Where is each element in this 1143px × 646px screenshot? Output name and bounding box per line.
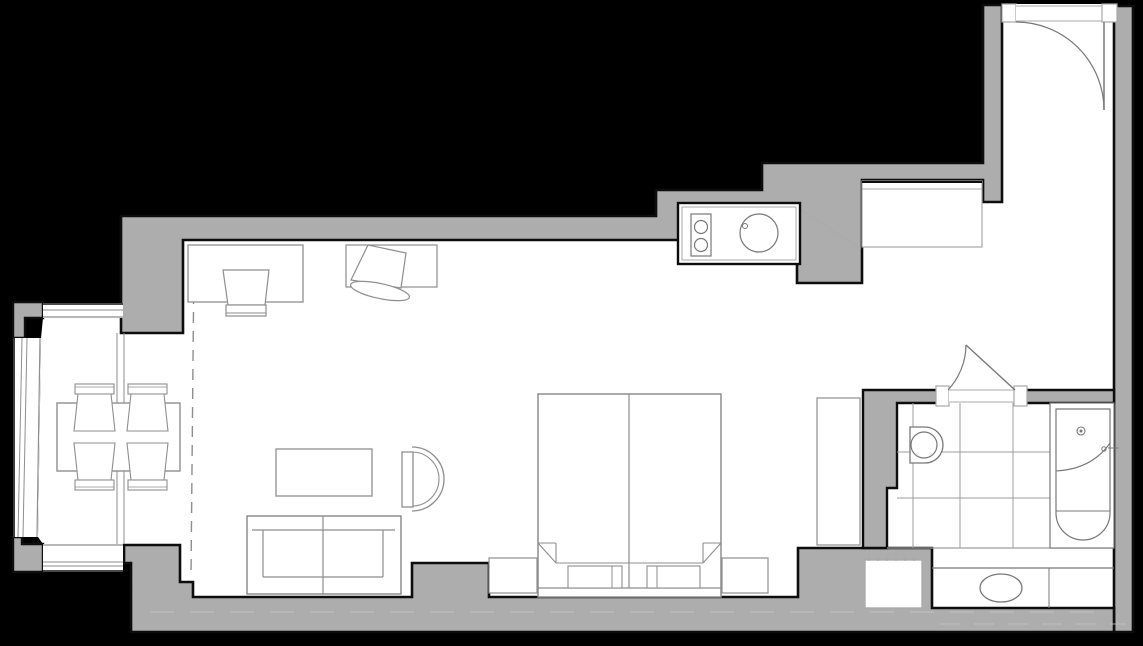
armchair-front-bar xyxy=(402,452,413,507)
entry-door-jamb-left xyxy=(1002,4,1016,22)
toilet-bowl xyxy=(911,432,937,458)
bay-window-bottom xyxy=(43,544,123,572)
dining-chair-4-back xyxy=(128,480,167,490)
bath-door-jamb-left xyxy=(936,386,949,406)
sofa xyxy=(247,516,401,594)
nightstand-right xyxy=(722,558,768,593)
kitchen-unit xyxy=(678,203,800,264)
entry-door-jamb-right xyxy=(1102,4,1117,22)
vanity-sink-basin xyxy=(980,574,1022,602)
wall-east xyxy=(1114,6,1133,632)
desk-chair-back xyxy=(226,305,266,316)
dining-chair-1-back xyxy=(75,384,114,394)
wardrobe xyxy=(817,398,860,545)
washing-machine xyxy=(865,560,922,608)
shower-head-dot xyxy=(1080,430,1083,433)
dining-chair-2-seat xyxy=(127,394,168,431)
pillow-right xyxy=(647,566,700,588)
dining-chair-4-seat xyxy=(127,443,168,480)
desk-chair-seat xyxy=(223,270,269,305)
kitchen-counter xyxy=(862,181,982,247)
bay-window-left xyxy=(13,338,41,537)
floor-plan-svg xyxy=(0,0,1143,646)
dining-chair-3-back xyxy=(75,480,114,490)
dining-chair-2-back xyxy=(128,384,167,394)
wall-bathroom-north xyxy=(1014,390,1114,403)
entry-door-opening xyxy=(1016,4,1102,22)
dining-chair-1-seat xyxy=(74,394,115,431)
dining-chair-3-seat xyxy=(74,443,115,480)
bath-door-jamb-right xyxy=(1014,386,1027,406)
nightstand-left xyxy=(489,558,537,593)
pillow-left xyxy=(568,566,622,588)
coffee-table xyxy=(276,449,372,496)
shower-tub xyxy=(1056,409,1110,540)
floor-plan-canvas xyxy=(0,0,1143,646)
